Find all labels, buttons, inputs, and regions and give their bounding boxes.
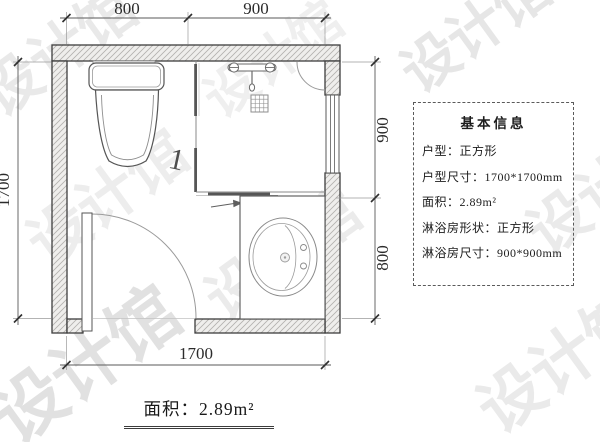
toilet-tank — [89, 63, 164, 90]
toilet-bowl — [96, 90, 159, 167]
info-row-area: 面积：2.89m² — [414, 190, 573, 216]
total-area-label: 面积：2.89m² — [118, 396, 280, 421]
wall-left — [52, 61, 67, 333]
info-row-layout: 户型：正方形 — [414, 139, 573, 165]
wall-right-lower — [325, 173, 340, 333]
hand-shower-head — [249, 84, 254, 91]
shower-mixer — [228, 63, 276, 91]
shower-enclosure: 1 — [166, 61, 325, 207]
wall-bottom-left-stub — [67, 319, 83, 333]
door-leaf — [82, 213, 92, 331]
sink-vanity — [240, 196, 325, 319]
wall-bottom-right — [195, 319, 325, 333]
entry-door — [82, 213, 196, 331]
dimension-top: 800 900 — [60, 0, 331, 44]
dim-top-900: 900 — [243, 0, 269, 18]
dimension-left: 1700 — [0, 56, 51, 325]
floor-drain — [251, 95, 268, 112]
dim-right-800: 800 — [373, 245, 392, 271]
dim-right-900: 900 — [373, 117, 392, 143]
dimension-bottom: 1700 — [60, 336, 331, 370]
wall-right-upper — [325, 61, 340, 95]
shower-glass-panel-lower — [194, 148, 197, 192]
dim-top-800: 800 — [114, 0, 140, 18]
info-row-shower-shape: 淋浴房形状：正方形 — [414, 216, 573, 242]
dim-bottom-1700: 1700 — [179, 344, 213, 363]
shower-entry-arrow — [211, 200, 243, 208]
basic-info-panel: 基本信息 户型：正方形 户型尺寸：1700*1700mm 面积：2.89m² 淋… — [413, 102, 574, 286]
floorplan-page: 设计馆 设计馆 设计馆 设计馆 设计馆 设计馆 设计馆 设计馆 — [0, 0, 600, 442]
door-swing-arc — [92, 214, 196, 318]
dim-left-1700: 1700 — [0, 173, 13, 207]
shower-sliding-door — [208, 193, 270, 196]
info-row-layout-size: 户型尺寸：1700*1700mm — [414, 165, 573, 191]
dimension-right: 900 800 — [336, 56, 392, 325]
area-label-underline — [124, 426, 274, 429]
wall-top — [52, 45, 340, 61]
window — [326, 95, 339, 173]
faucet-hole-2 — [301, 263, 307, 269]
info-row-shower-size: 淋浴房尺寸：900*900mm — [414, 241, 573, 267]
corner-shelf-arc — [297, 62, 325, 90]
shower-glass-panel-upper — [194, 64, 197, 116]
toilet — [89, 61, 164, 167]
door-mark-label: 1 — [166, 142, 188, 177]
info-panel-title: 基本信息 — [414, 112, 573, 132]
faucet-hole-1 — [301, 245, 307, 251]
